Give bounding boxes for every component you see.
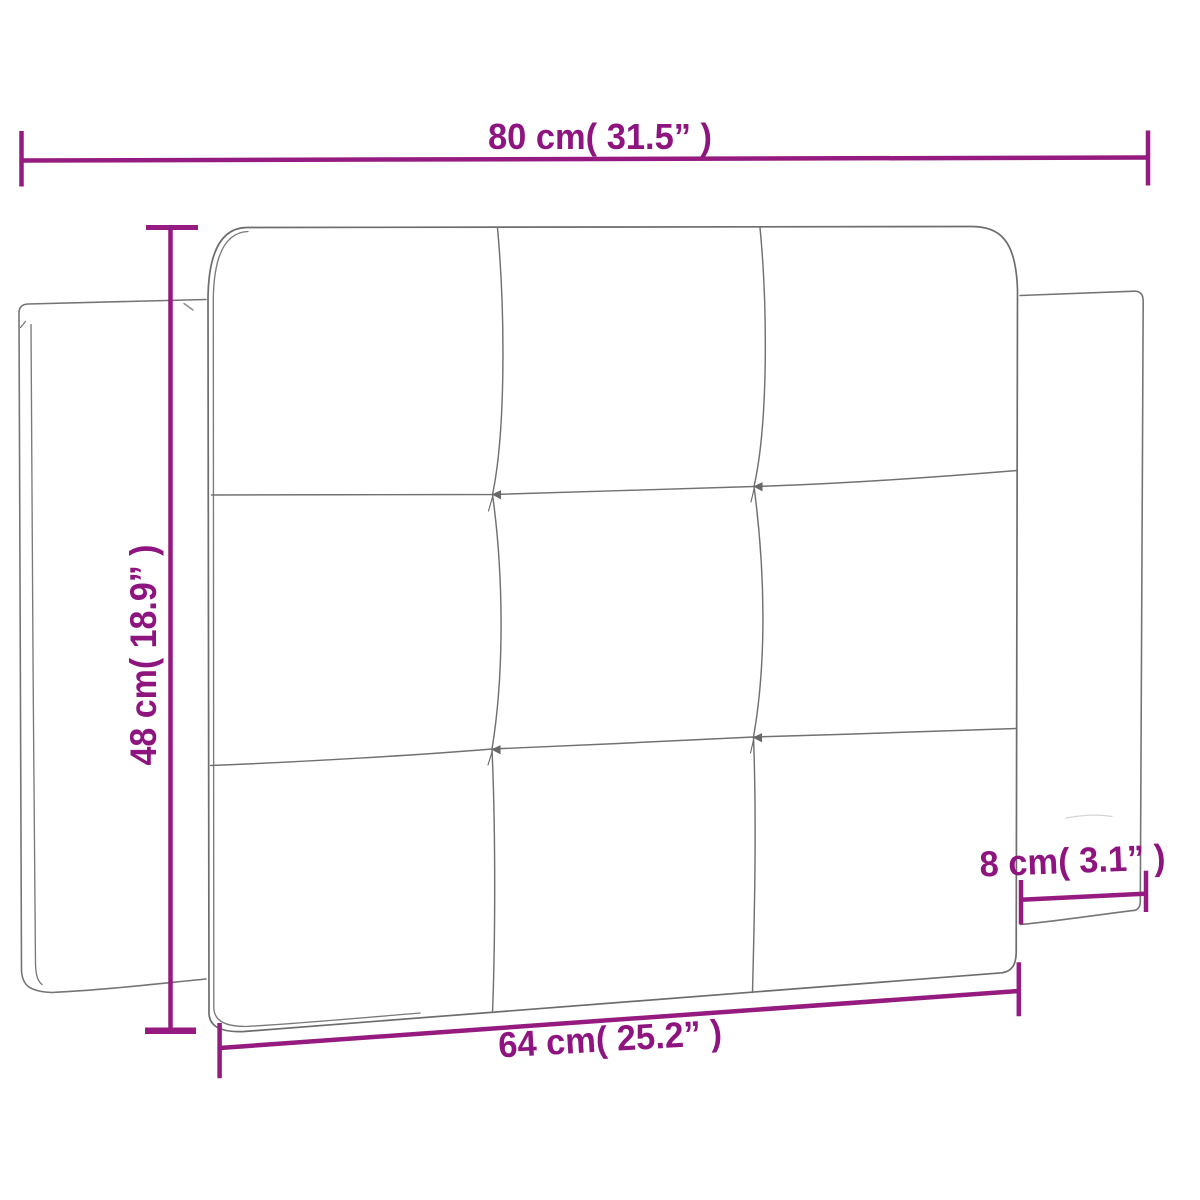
svg-text:8 cm( 3.1” ): 8 cm( 3.1” ) xyxy=(979,836,1166,884)
svg-text:48 cm( 18.9” ): 48 cm( 18.9” ) xyxy=(123,545,164,766)
svg-text:80 cm( 31.5” ): 80 cm( 31.5” ) xyxy=(488,116,712,157)
